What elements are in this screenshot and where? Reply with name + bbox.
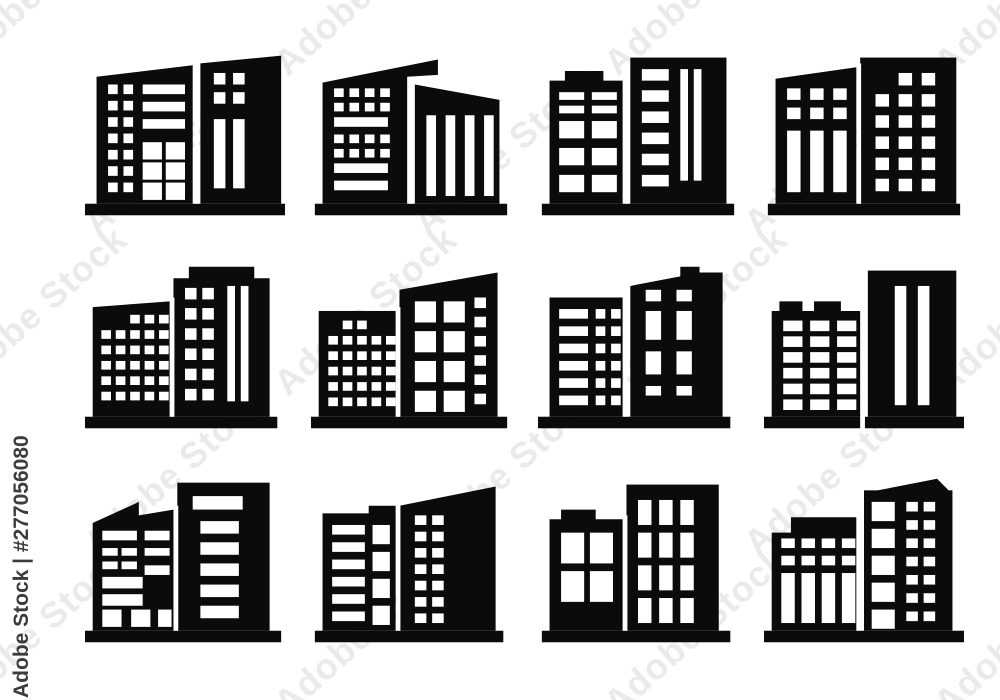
buildings-icon-10: [311, 473, 511, 650]
buildings-icon-7: [538, 259, 738, 436]
buildings-icon-11: [538, 473, 738, 650]
buildings-icon-8: [764, 259, 964, 436]
buildings-icon-2-svg: [311, 46, 511, 223]
buildings-icon-8-svg: [764, 259, 964, 436]
buildings-icon-4: [764, 46, 964, 223]
buildings-icon-5-svg: [85, 259, 285, 436]
buildings-icon-1-svg: [85, 46, 285, 223]
buildings-icon-12-svg: [764, 473, 964, 650]
buildings-icon-7-svg: [538, 259, 738, 436]
buildings-icon-12: [764, 473, 964, 650]
buildings-icon-6-svg: [311, 259, 511, 436]
watermark-id-label: Adobe Stock | #277056080: [10, 435, 34, 698]
buildings-icon-6: [311, 259, 511, 436]
buildings-icon-2: [311, 46, 511, 223]
buildings-icon-10-svg: [311, 473, 511, 650]
buildings-icon-4-svg: [764, 46, 964, 223]
buildings-icon-5: [85, 259, 285, 436]
buildings-icon-3: [538, 46, 738, 223]
buildings-icon-9-svg: [85, 473, 285, 650]
stock-image-canvas: Adobe StockAdobe StockAdobe StockAdobe S…: [0, 0, 1000, 700]
buildings-icon-9: [85, 473, 285, 650]
buildings-icon-11-svg: [538, 473, 738, 650]
building-icon-grid: [72, 28, 977, 668]
buildings-icon-3-svg: [538, 46, 738, 223]
buildings-icon-1: [85, 46, 285, 223]
